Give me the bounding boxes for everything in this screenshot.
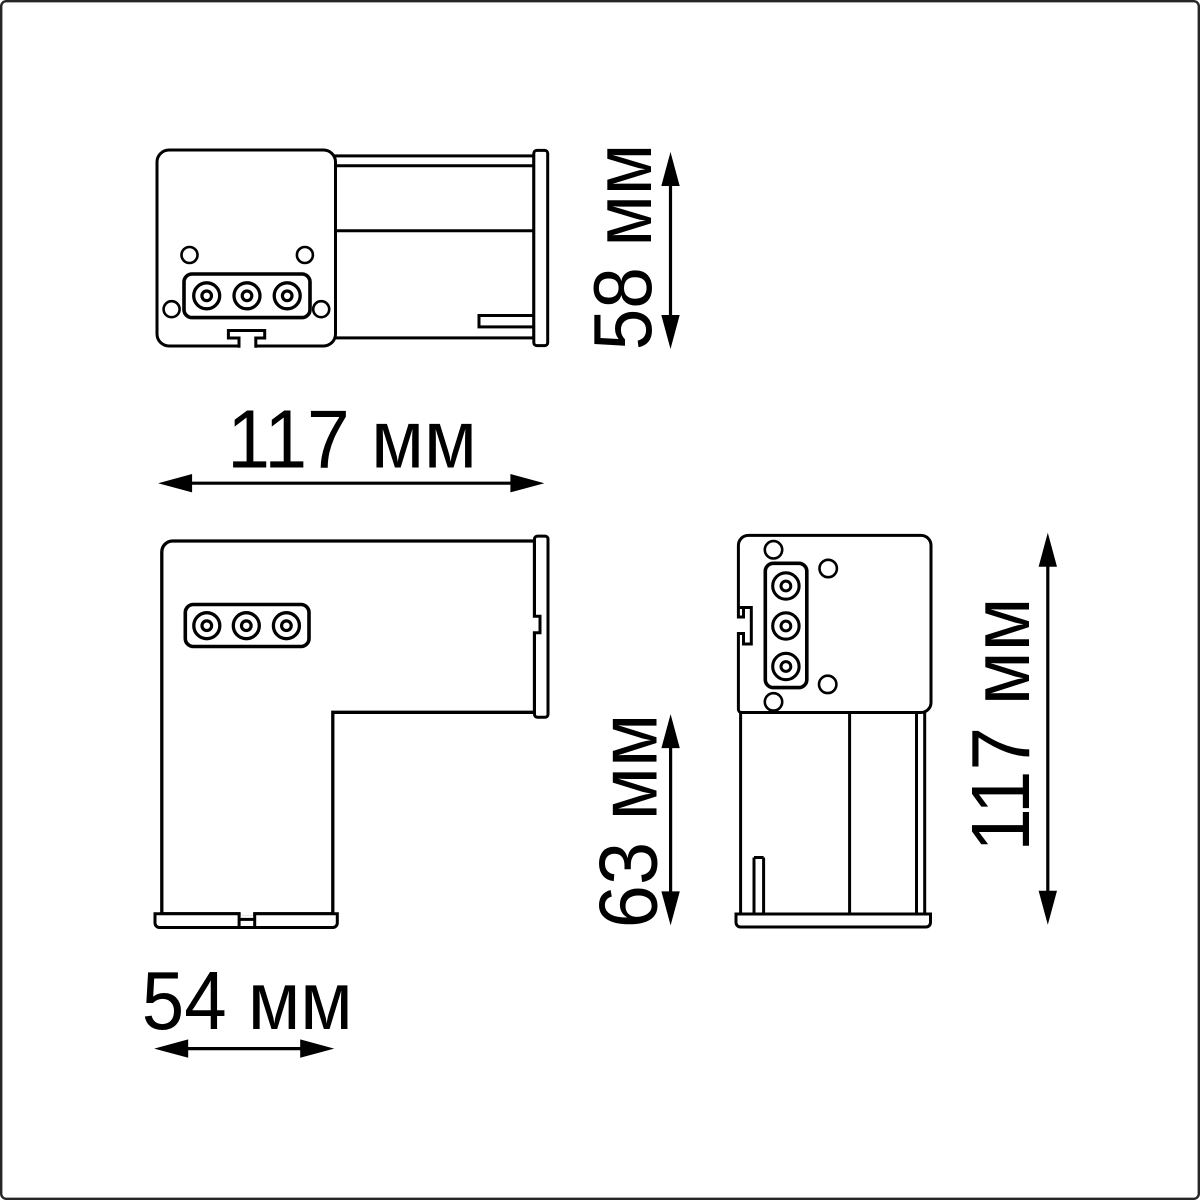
- svg-text:117 мм: 117 мм: [954, 598, 1047, 852]
- svg-text:63 мм: 63 мм: [582, 714, 675, 929]
- svg-text:58 мм: 58 мм: [576, 144, 669, 351]
- svg-text:54 мм: 54 мм: [142, 954, 353, 1047]
- svg-text:117 мм: 117 мм: [227, 392, 476, 485]
